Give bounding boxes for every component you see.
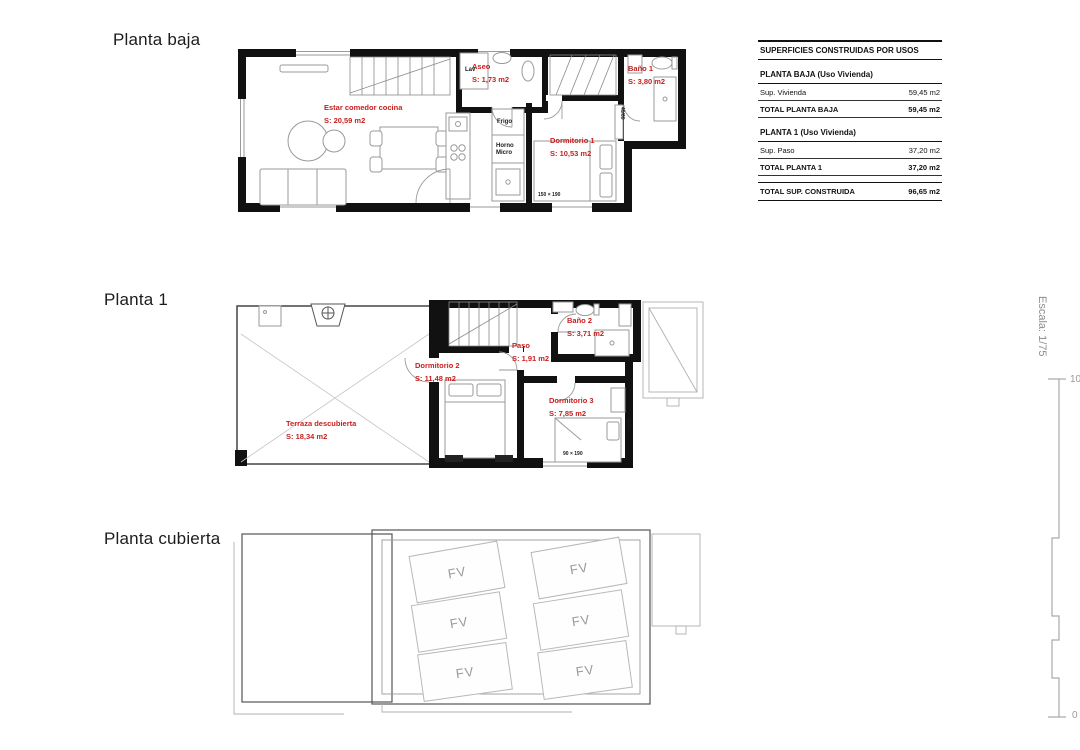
room-name: Dormitorio 3 [549,395,594,408]
floor-plan-planta-1: Terraza descubierta S: 18,34 m2 Dormitor… [233,300,713,472]
stairs [449,302,517,346]
row-value: 37,20 m2 [908,163,940,172]
neighbor-outline [643,302,703,406]
room-area: S: 7,85 m2 [549,408,594,421]
room-area: S: 1,73 m2 [472,74,509,87]
row-label: TOTAL SUP. CONSTRUIDA [760,187,855,196]
row-label: Sup. Paso [760,146,795,155]
fv-label: FV [569,559,590,577]
room-label-bano2: Baño 2 S: 3,71 m2 [567,315,604,341]
room-area: S: 3,71 m2 [567,328,604,341]
table-grand-total-row: TOTAL SUP. CONSTRUIDA 96,65 m2 [758,182,942,201]
stairs [350,57,450,95]
room-label-dorm3: Dormitorio 3 S: 7,85 m2 [549,395,594,421]
table-total-row: TOTAL PLANTA 1 37,20 m2 [758,159,942,176]
planta-baja-drawing [234,45,686,217]
heading-planta-cubierta: Planta cubierta [104,529,220,549]
roof-plan-planta-cubierta: FV FV FV FV FV FV [232,528,702,718]
room-name: Estar comedor cocina [324,102,402,115]
room-name: Baño 1 [628,63,665,76]
fv-label: FV [447,563,468,581]
dorm2-bed [445,380,505,458]
scale-max: 10 [1070,374,1080,385]
room-name: Dormitorio 1 [550,135,595,148]
label-closet-size: 40/60 [624,418,630,431]
room-label-dorm2: Dormitorio 2 S: 11,48 m2 [415,360,460,386]
label-horno: Horno [496,143,514,150]
scale-min: 0 [1072,710,1078,721]
room-name: Aseo [472,61,509,74]
row-value: 96,65 m2 [908,187,940,196]
room-name: Terraza descubierta [286,418,356,431]
row-label: TOTAL PLANTA 1 [760,163,822,172]
table-total-row: TOTAL PLANTA BAJA 59,45 m2 [758,101,942,118]
room-label-bano1: Baño 1 S: 3,80 m2 [628,63,665,89]
table-title: SUPERFICIES CONSTRUIDAS POR USOS [758,40,942,60]
scale-text: Escala: 1/75 [1036,296,1048,357]
label-frigo: Frigo [497,119,512,126]
table-group-header: PLANTA BAJA (Uso Vivienda) [758,66,942,84]
table-row: Sup. Paso 37,20 m2 [758,142,942,159]
heading-planta-1: Planta 1 [104,290,168,310]
heading-planta-baja: Planta baja [113,30,200,50]
fv-label: FV [449,613,470,631]
room-area: S: 10,53 m2 [550,148,595,161]
fv-label: FV [455,663,476,680]
sheet: Planta baja Planta 1 Planta cubierta [0,0,1080,750]
row-label: Sup. Vivienda [760,88,806,97]
table-row: Sup. Vivienda 59,45 m2 [758,84,942,101]
floor-plan-planta-baja: Estar comedor cocina S: 20,59 m2 Aseo S:… [234,45,686,217]
wardrobe-hatch [550,55,616,95]
room-name: Dormitorio 2 [415,360,460,373]
table-group-header: PLANTA 1 (Uso Vivienda) [758,124,942,142]
label-bed3-size: 90 × 190 [563,452,583,458]
label-closet-size: 40/60 [618,107,624,120]
room-area: S: 1,91 m2 [512,353,549,366]
room-area: S: 11,48 m2 [415,373,460,386]
scale-bar [1044,378,1072,718]
planta-1-drawing [233,300,713,472]
row-label: TOTAL PLANTA BAJA [760,105,838,114]
room-label-dorm1: Dormitorio 1 S: 10,53 m2 [550,135,595,161]
room-label-aseo: Aseo S: 1,73 m2 [472,61,509,87]
living-furniture [260,65,448,205]
room-label-terraza: Terraza descubierta S: 18,34 m2 [286,418,356,444]
room-label-paso: Paso S: 1,91 m2 [512,340,549,366]
row-value: 37,20 m2 [909,146,940,155]
room-area: S: 3,80 m2 [628,76,665,89]
row-value: 59,45 m2 [909,88,940,97]
label-micro: Micro [496,150,512,157]
label-bed1-size: 150 × 190 [538,193,560,199]
room-label-estar: Estar comedor cocina S: 20,59 m2 [324,102,402,128]
areas-summary-table: SUPERFICIES CONSTRUIDAS POR USOS PLANTA … [758,40,942,201]
tag-box [445,455,463,462]
row-value: 59,45 m2 [908,105,940,114]
fv-label: FV [571,611,592,629]
room-area: S: 18,34 m2 [286,431,356,444]
fv-label: FV [575,661,596,678]
room-area: S: 20,59 m2 [324,115,402,128]
label-lav: Lav [465,67,475,74]
room-name: Paso [512,340,549,353]
tag-box [495,455,513,462]
room-name: Baño 2 [567,315,604,328]
